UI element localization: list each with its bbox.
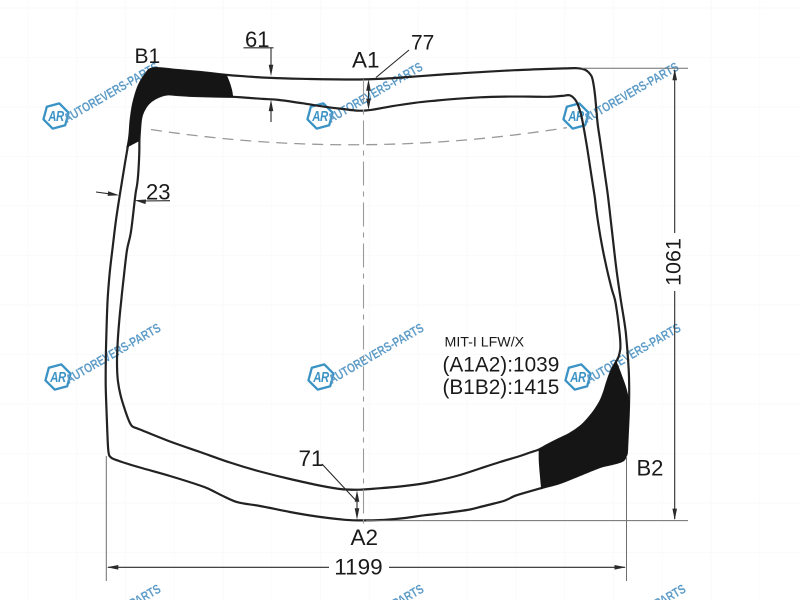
svg-text:77: 77: [411, 32, 434, 55]
svg-text:MIT-I LFW/X: MIT-I LFW/X: [445, 335, 525, 351]
svg-text:A2: A2: [351, 525, 379, 550]
svg-text:A1: A1: [352, 48, 380, 73]
svg-text:(B1B2):1415: (B1B2):1415: [443, 376, 560, 399]
svg-text:1061: 1061: [662, 238, 686, 286]
svg-text:61: 61: [245, 27, 269, 52]
svg-text:71: 71: [299, 446, 324, 471]
svg-text:23: 23: [146, 180, 170, 205]
svg-text:1199: 1199: [334, 555, 382, 580]
svg-text:(A1A2):1039: (A1A2):1039: [443, 353, 560, 376]
svg-text:B2: B2: [637, 456, 664, 481]
svg-text:B1: B1: [135, 45, 161, 68]
